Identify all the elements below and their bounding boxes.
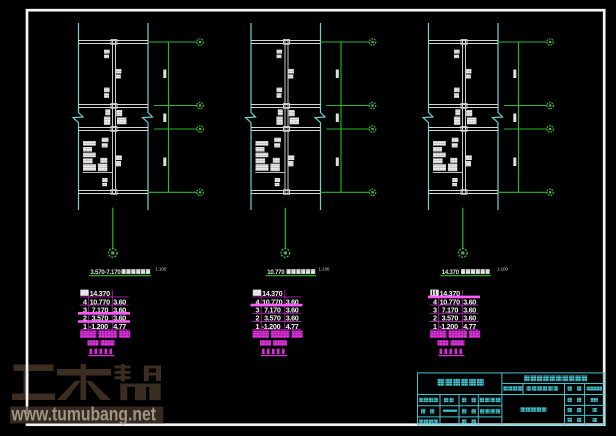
svg-text:3.570-7.170: 3.570-7.170 [90, 270, 121, 276]
svg-text:1:100: 1:100 [319, 267, 331, 272]
svg-text:14.370: 14.370 [442, 270, 460, 276]
svg-text:1:100: 1:100 [497, 267, 509, 272]
svg-text:10.770: 10.770 [267, 270, 285, 276]
svg-text:1:100: 1:100 [155, 267, 167, 272]
svg-text:www.tumubang.net: www.tumubang.net [11, 403, 157, 425]
